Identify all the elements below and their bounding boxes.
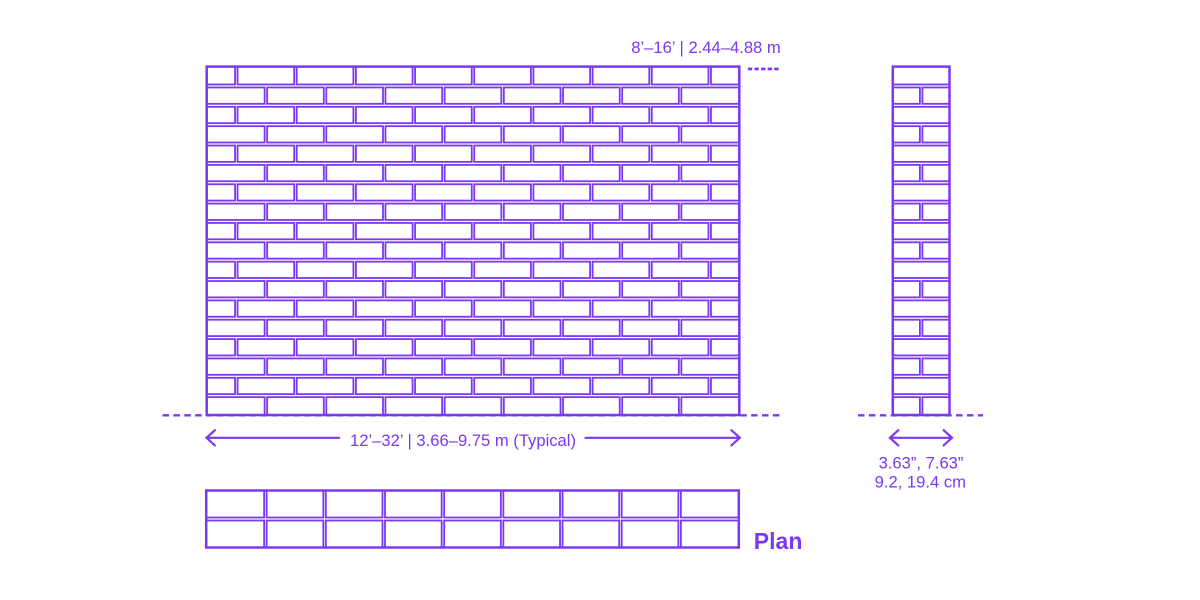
svg-text:Plan: Plan [754, 528, 803, 554]
svg-text:3.63”, 7.63”: 3.63”, 7.63” [879, 454, 964, 473]
svg-text:9.2, 19.4 cm: 9.2, 19.4 cm [875, 473, 966, 492]
svg-text:12’–32’ | 3.66–9.75 m (Typical: 12’–32’ | 3.66–9.75 m (Typical) [350, 431, 576, 450]
svg-text:8’–16’ | 2.44–4.88 m: 8’–16’ | 2.44–4.88 m [631, 38, 780, 57]
